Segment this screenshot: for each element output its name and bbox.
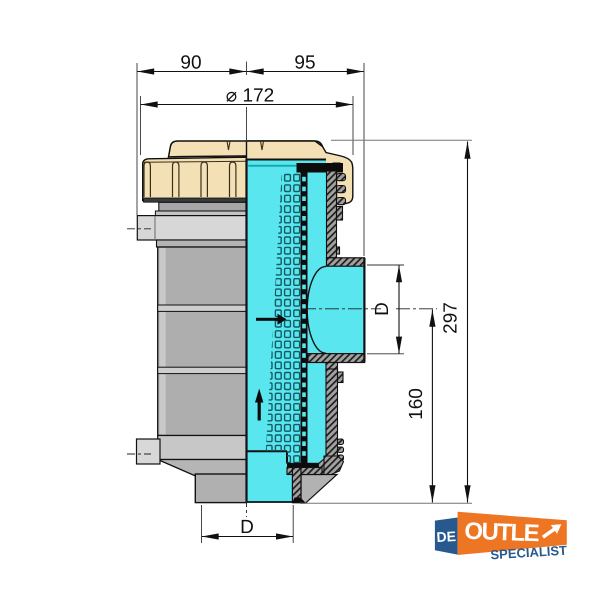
svg-text:⌀ 172: ⌀ 172 (226, 86, 274, 107)
svg-text:297: 297 (441, 302, 462, 334)
svg-text:160: 160 (406, 388, 427, 420)
svg-text:D: D (240, 517, 254, 538)
svg-text:OUTLE: OUTLE (464, 518, 540, 548)
svg-text:DE: DE (436, 528, 456, 545)
svg-text:90: 90 (180, 53, 201, 74)
svg-text:95: 95 (294, 53, 315, 74)
svg-text:D: D (372, 302, 393, 316)
